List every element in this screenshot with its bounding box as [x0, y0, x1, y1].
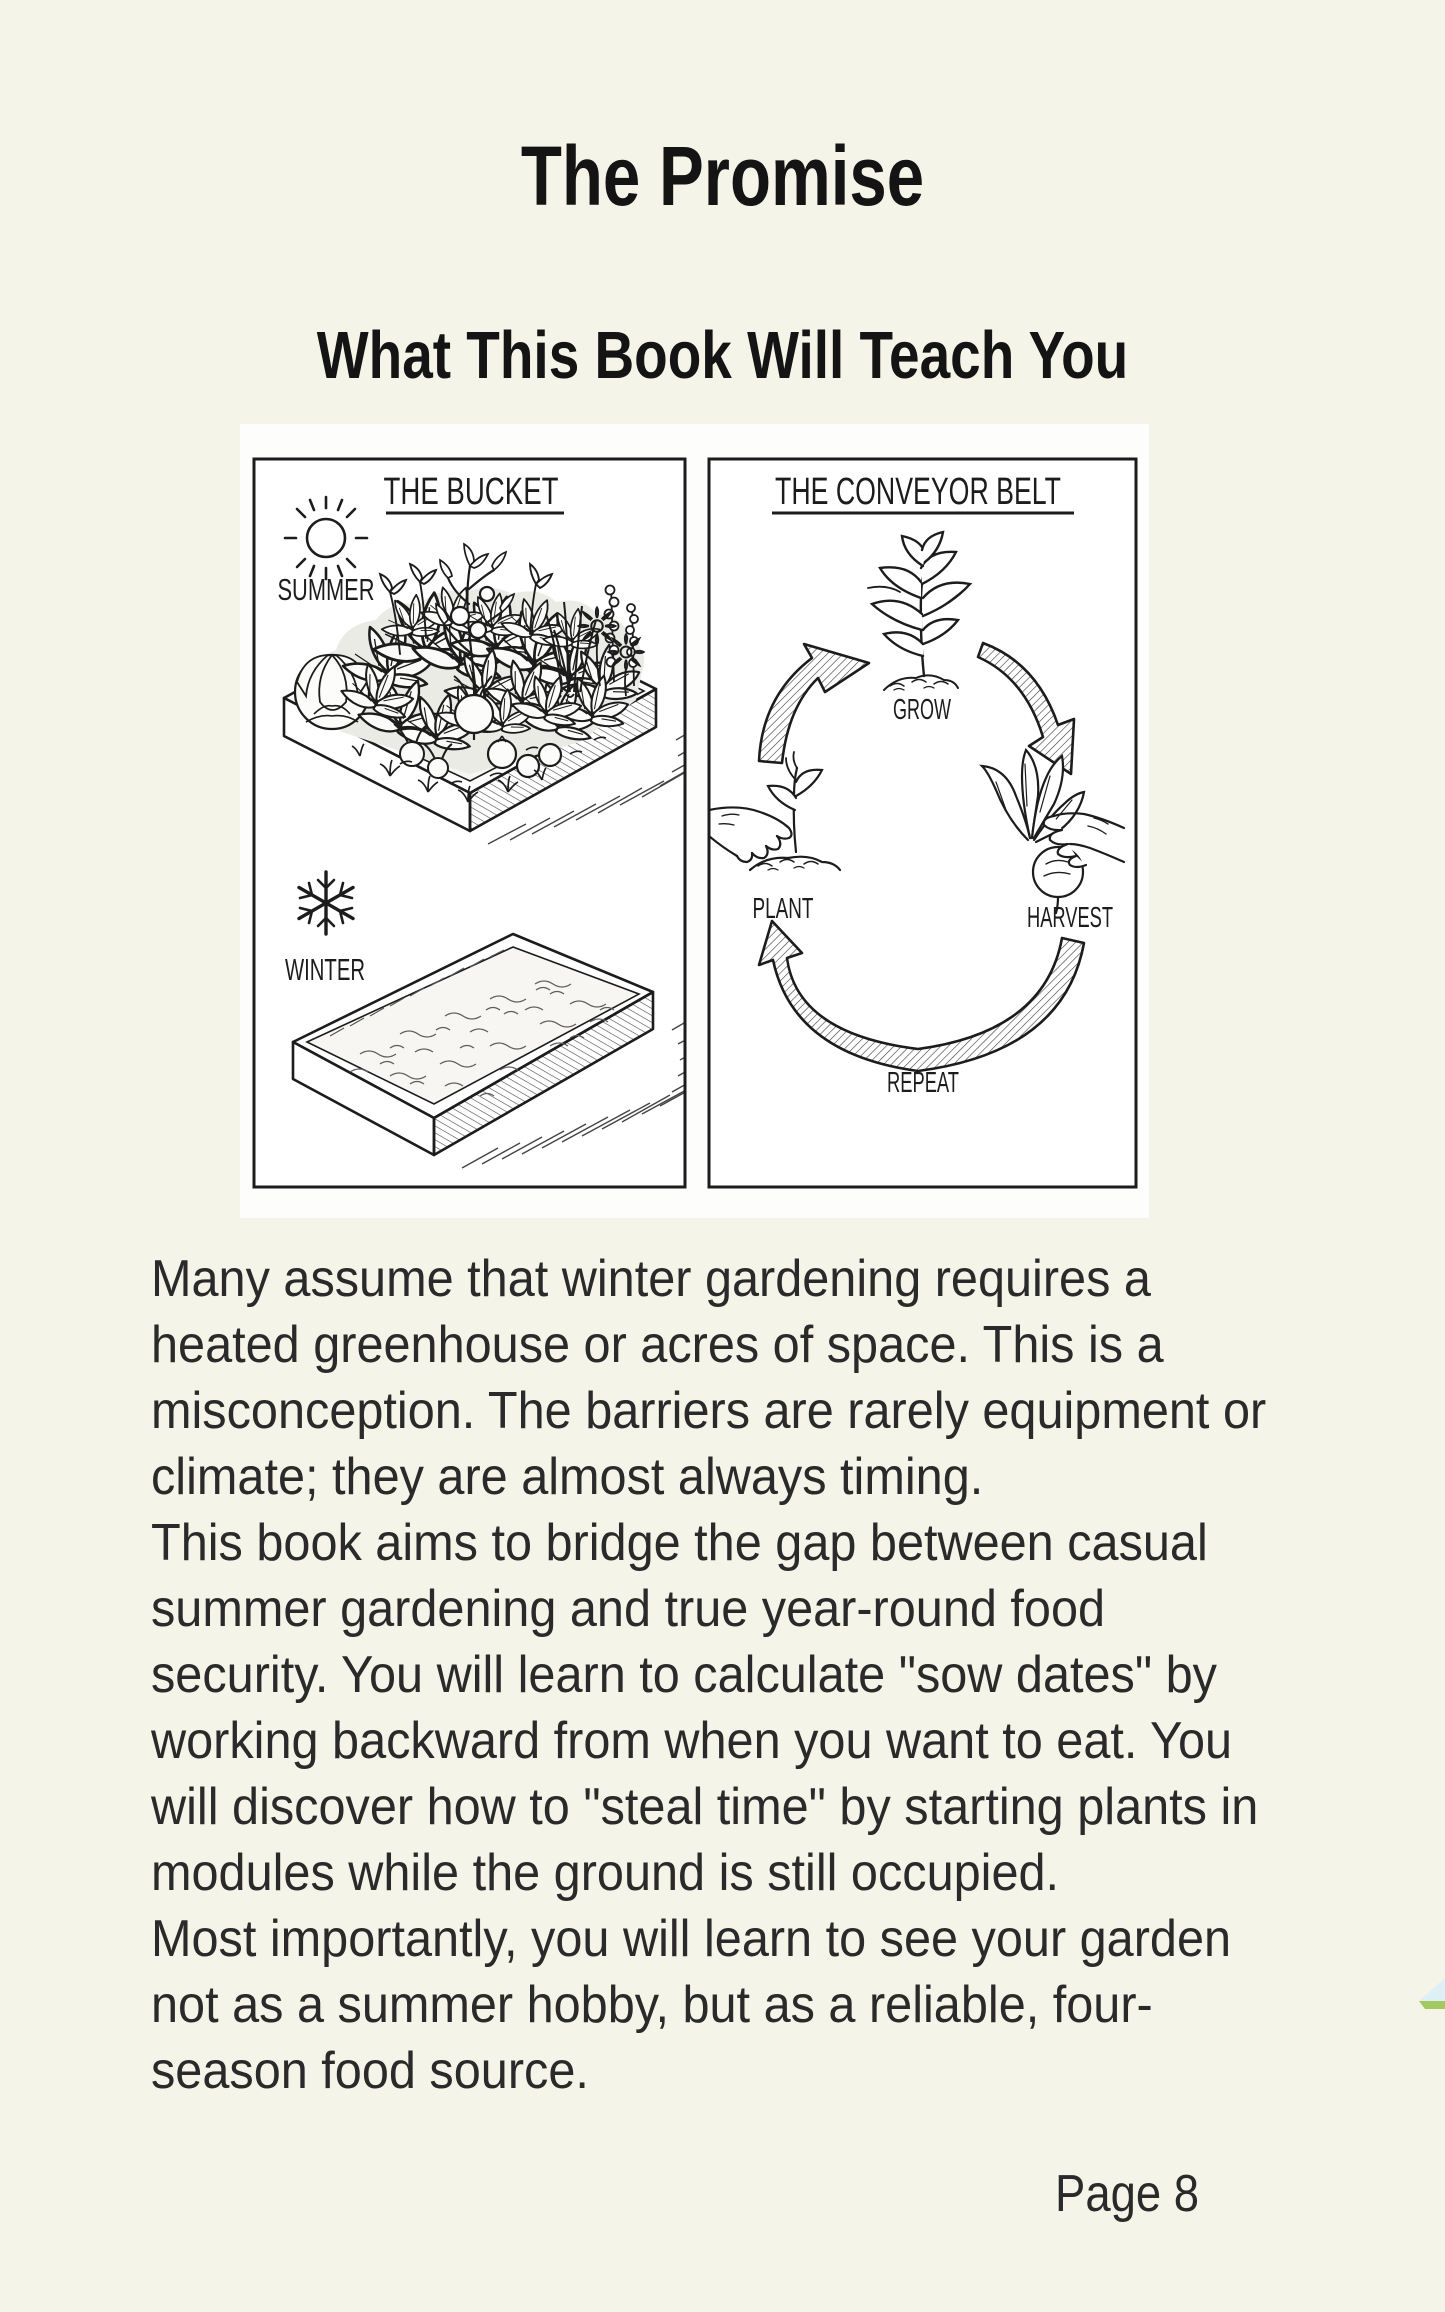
svg-text:THE BUCKET: THE BUCKET: [384, 471, 559, 513]
svg-text:HARVEST: HARVEST: [1027, 902, 1113, 934]
svg-text:THE CONVEYOR BELT: THE CONVEYOR BELT: [775, 471, 1061, 513]
svg-text:WINTER: WINTER: [285, 952, 365, 987]
svg-text:GROW: GROW: [893, 694, 951, 726]
svg-text:PLANT: PLANT: [753, 893, 814, 925]
svg-text:REPEAT: REPEAT: [887, 1067, 959, 1099]
